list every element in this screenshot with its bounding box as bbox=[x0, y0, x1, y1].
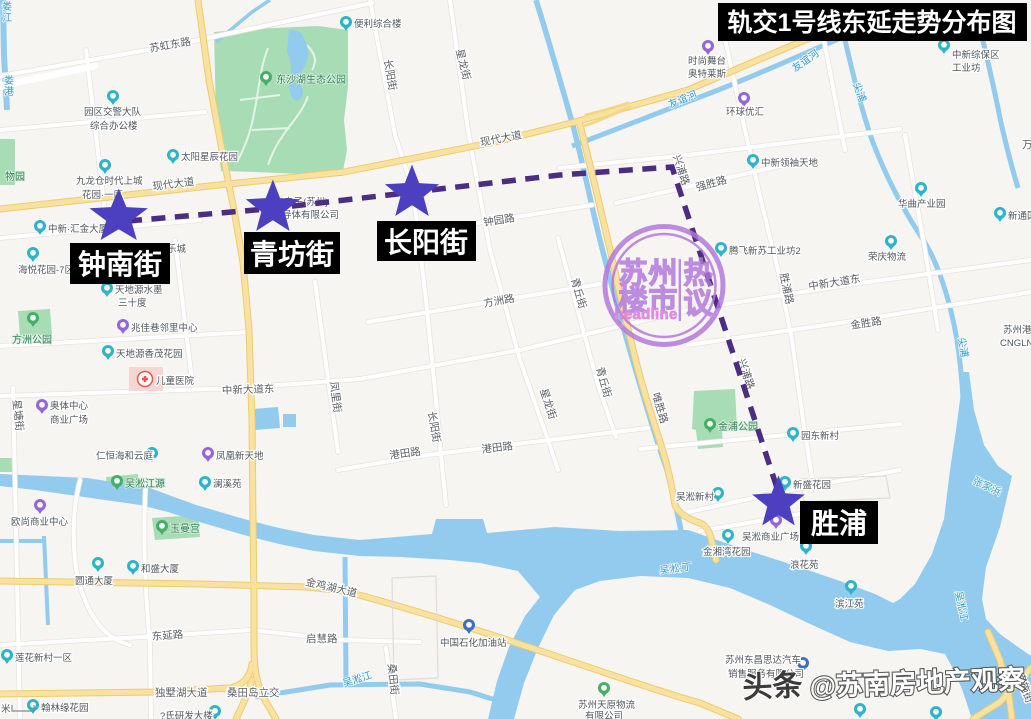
svg-text:?氏研发大楼: ?氏研发大楼 bbox=[160, 710, 213, 719]
svg-text:圆通大厦: 圆通大厦 bbox=[75, 575, 114, 587]
svg-text:物园: 物园 bbox=[5, 170, 25, 183]
svg-text:浪花苑: 浪花苑 bbox=[790, 559, 819, 571]
svg-text:九龙仓时代上城: 九龙仓时代上城 bbox=[76, 175, 143, 187]
svg-text:莲花新村一区: 莲花新村一区 bbox=[15, 652, 73, 664]
svg-text:长阳街: 长阳街 bbox=[384, 226, 468, 258]
svg-text:三十度: 三十度 bbox=[118, 297, 147, 309]
svg-text:玉曼宫: 玉曼宫 bbox=[170, 522, 200, 535]
svg-text:滨江苑: 滨江苑 bbox=[835, 598, 864, 610]
svg-text:翰林缘花园: 翰林缘花园 bbox=[41, 702, 89, 714]
svg-text:金湘湾花园: 金湘湾花园 bbox=[703, 546, 751, 558]
svg-text:苏州东昌思达汽车: 苏州东昌思达汽车 bbox=[725, 654, 801, 666]
svg-text:独墅湖大道: 独墅湖大道 bbox=[155, 686, 208, 699]
svg-text:欧尚商业中心: 欧尚商业中心 bbox=[11, 516, 69, 528]
svg-text:吴淞江源: 吴淞江源 bbox=[125, 477, 165, 490]
svg-text:娄: 娄 bbox=[2, 0, 12, 13]
svg-text:headline: headline bbox=[614, 306, 677, 323]
svg-text:轨交1号线东延走势分布图: 轨交1号线东延走势分布图 bbox=[728, 8, 1017, 37]
svg-text:中国石化加油站: 中国石化加油站 bbox=[440, 637, 507, 649]
svg-text:新通国: 新通国 bbox=[1008, 210, 1031, 222]
svg-text:港: 港 bbox=[4, 86, 14, 98]
svg-text:启慧路: 启慧路 bbox=[306, 632, 338, 645]
svg-text:仁恒海和云庭: 仁恒海和云庭 bbox=[96, 450, 154, 462]
svg-text:导体有限公司: 导体有限公司 bbox=[282, 209, 339, 221]
svg-text:太阳星辰花园: 太阳星辰花园 bbox=[181, 151, 238, 163]
svg-text:胜浦: 胜浦 bbox=[811, 508, 867, 539]
svg-text:头条: 头条 bbox=[742, 669, 804, 705]
svg-text:凤凰新天地: 凤凰新天地 bbox=[216, 450, 264, 462]
svg-text:天地源水墨: 天地源水墨 bbox=[115, 284, 163, 296]
svg-text:青坊街: 青坊街 bbox=[250, 238, 334, 270]
svg-text:荣庆物流: 荣庆物流 bbox=[868, 251, 907, 263]
svg-text:中新综保区: 中新综保区 bbox=[952, 49, 1000, 61]
svg-text:东沙湖生态公园: 东沙湖生态公园 bbox=[276, 73, 346, 86]
svg-text:儿童医院: 儿童医院 bbox=[156, 375, 195, 387]
svg-text:兆佳巷邻里中心: 兆佳巷邻里中心 bbox=[131, 322, 198, 334]
svg-text:桑田岛立交: 桑田岛立交 bbox=[227, 686, 280, 699]
svg-text:时尚舞台: 时尚舞台 bbox=[688, 55, 726, 67]
svg-text:米: 米 bbox=[1, 703, 11, 715]
svg-text:吴淞新村: 吴淞新村 bbox=[676, 491, 715, 503]
svg-text:热: 热 bbox=[683, 257, 712, 290]
svg-text:中新·汇金大厦: 中新·汇金大厦 bbox=[48, 223, 109, 235]
svg-text:万: 万 bbox=[1022, 139, 1031, 151]
svg-text:钟南街: 钟南街 bbox=[78, 248, 162, 280]
svg-text:园东新村: 园东新村 bbox=[801, 430, 840, 442]
svg-text:有限公司: 有限公司 bbox=[585, 710, 623, 719]
svg-text:华曲产业园: 华曲产业园 bbox=[898, 198, 946, 210]
svg-text:商业广场: 商业广场 bbox=[50, 414, 88, 426]
svg-text:江: 江 bbox=[2, 12, 12, 24]
svg-text:CNGLN: CNGLN bbox=[1000, 338, 1031, 349]
svg-text:天地源香茂花园: 天地源香茂花园 bbox=[116, 348, 183, 360]
svg-text:综合办公楼: 综合办公楼 bbox=[90, 120, 138, 132]
svg-text:新盛花园: 新盛花园 bbox=[793, 479, 831, 491]
svg-text:中新大道东: 中新大道东 bbox=[222, 382, 275, 397]
svg-text:苏州天原物流: 苏州天原物流 bbox=[578, 699, 636, 711]
svg-text:方洲公园: 方洲公园 bbox=[12, 333, 52, 346]
svg-text:便利综合楼: 便利综合楼 bbox=[354, 18, 402, 30]
svg-text:奥体中心: 奥体中心 bbox=[50, 400, 89, 412]
svg-text:中新领袖天地: 中新领袖天地 bbox=[761, 157, 819, 169]
svg-text:吴淞商业广场: 吴淞商业广场 bbox=[742, 531, 799, 543]
svg-text:澜溪苑: 澜溪苑 bbox=[213, 478, 242, 490]
svg-text:工业坊: 工业坊 bbox=[952, 62, 981, 74]
svg-text:海悦花园-7区: 海悦花园-7区 bbox=[18, 264, 74, 276]
svg-text:环球优汇: 环球优汇 bbox=[726, 106, 765, 118]
svg-text:金浦公园: 金浦公园 bbox=[718, 420, 758, 433]
svg-text:腾飞新苏工业坊2: 腾飞新苏工业坊2 bbox=[729, 245, 801, 257]
svg-text:苏州港: 苏州港 bbox=[1003, 324, 1031, 336]
svg-text:奥特莱斯: 奥特莱斯 bbox=[688, 68, 727, 80]
svg-text:和盛大厦: 和盛大厦 bbox=[141, 563, 180, 575]
svg-text:议: 议 bbox=[683, 287, 713, 320]
svg-text:东延路: 东延路 bbox=[151, 628, 184, 643]
svg-text:园区交警大队: 园区交警大队 bbox=[84, 106, 142, 118]
svg-text:娄: 娄 bbox=[4, 74, 14, 87]
